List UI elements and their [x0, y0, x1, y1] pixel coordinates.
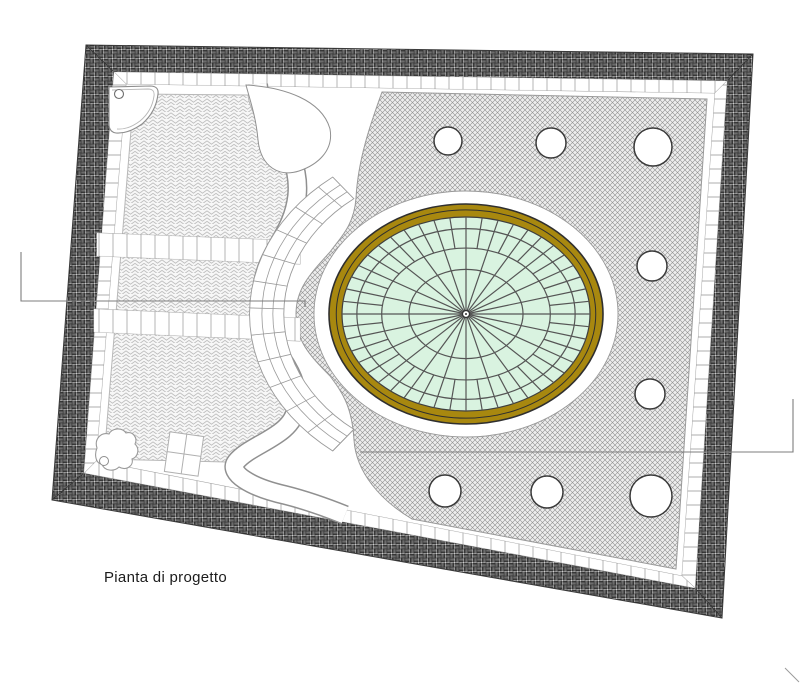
tree-circle: [531, 476, 563, 508]
plan-title-label: Pianta di progetto: [104, 569, 227, 586]
tree-circle: [536, 128, 566, 158]
tree-circle: [434, 127, 462, 155]
tree-circle: [429, 475, 461, 507]
bush-feature: [96, 429, 138, 470]
tree-circle: [635, 379, 665, 409]
tree-circle: [630, 475, 672, 517]
planter-grid: [164, 432, 203, 476]
oval-dome: [329, 204, 603, 424]
tree-circle: [637, 251, 667, 281]
site-plan-page: Pianta di progetto: [0, 0, 800, 683]
tree-circle: [634, 128, 672, 166]
